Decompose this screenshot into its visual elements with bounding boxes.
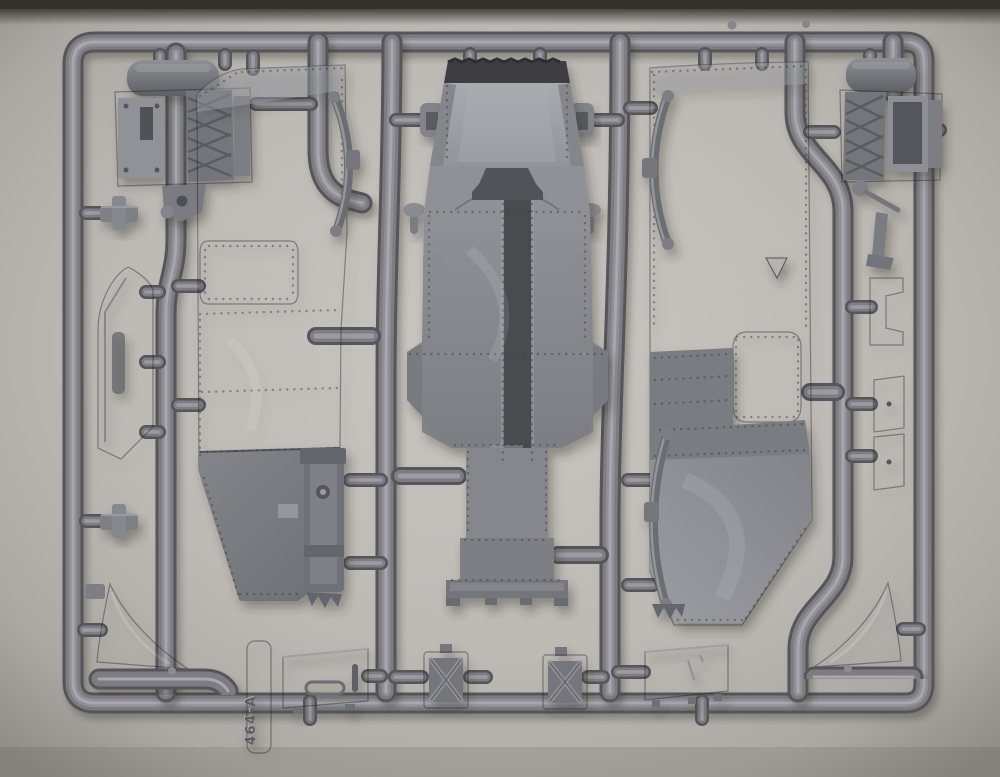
hull-side-tab [571, 252, 591, 278]
fender-marking [112, 332, 125, 394]
sprue-label-text: 464-A [244, 695, 259, 745]
hull-pedestal [460, 538, 554, 580]
gate-tab [85, 584, 105, 599]
sprue-photo-canvas: 464-A 464-A [0, 0, 1000, 777]
photo-model-kit-sprue: 464-A 464-A [0, 0, 1000, 777]
leaf-spring-lower-left [300, 448, 346, 608]
tow-rod-right [814, 665, 913, 677]
gate-nub [802, 20, 810, 28]
gate-nub [728, 21, 737, 30]
backdrop-top-edge [0, 0, 1000, 9]
hull-center-channel [504, 200, 531, 471]
hull-side-tab [423, 252, 443, 278]
tow-rod-left [99, 667, 228, 691]
hull-serrated-top [444, 61, 570, 83]
